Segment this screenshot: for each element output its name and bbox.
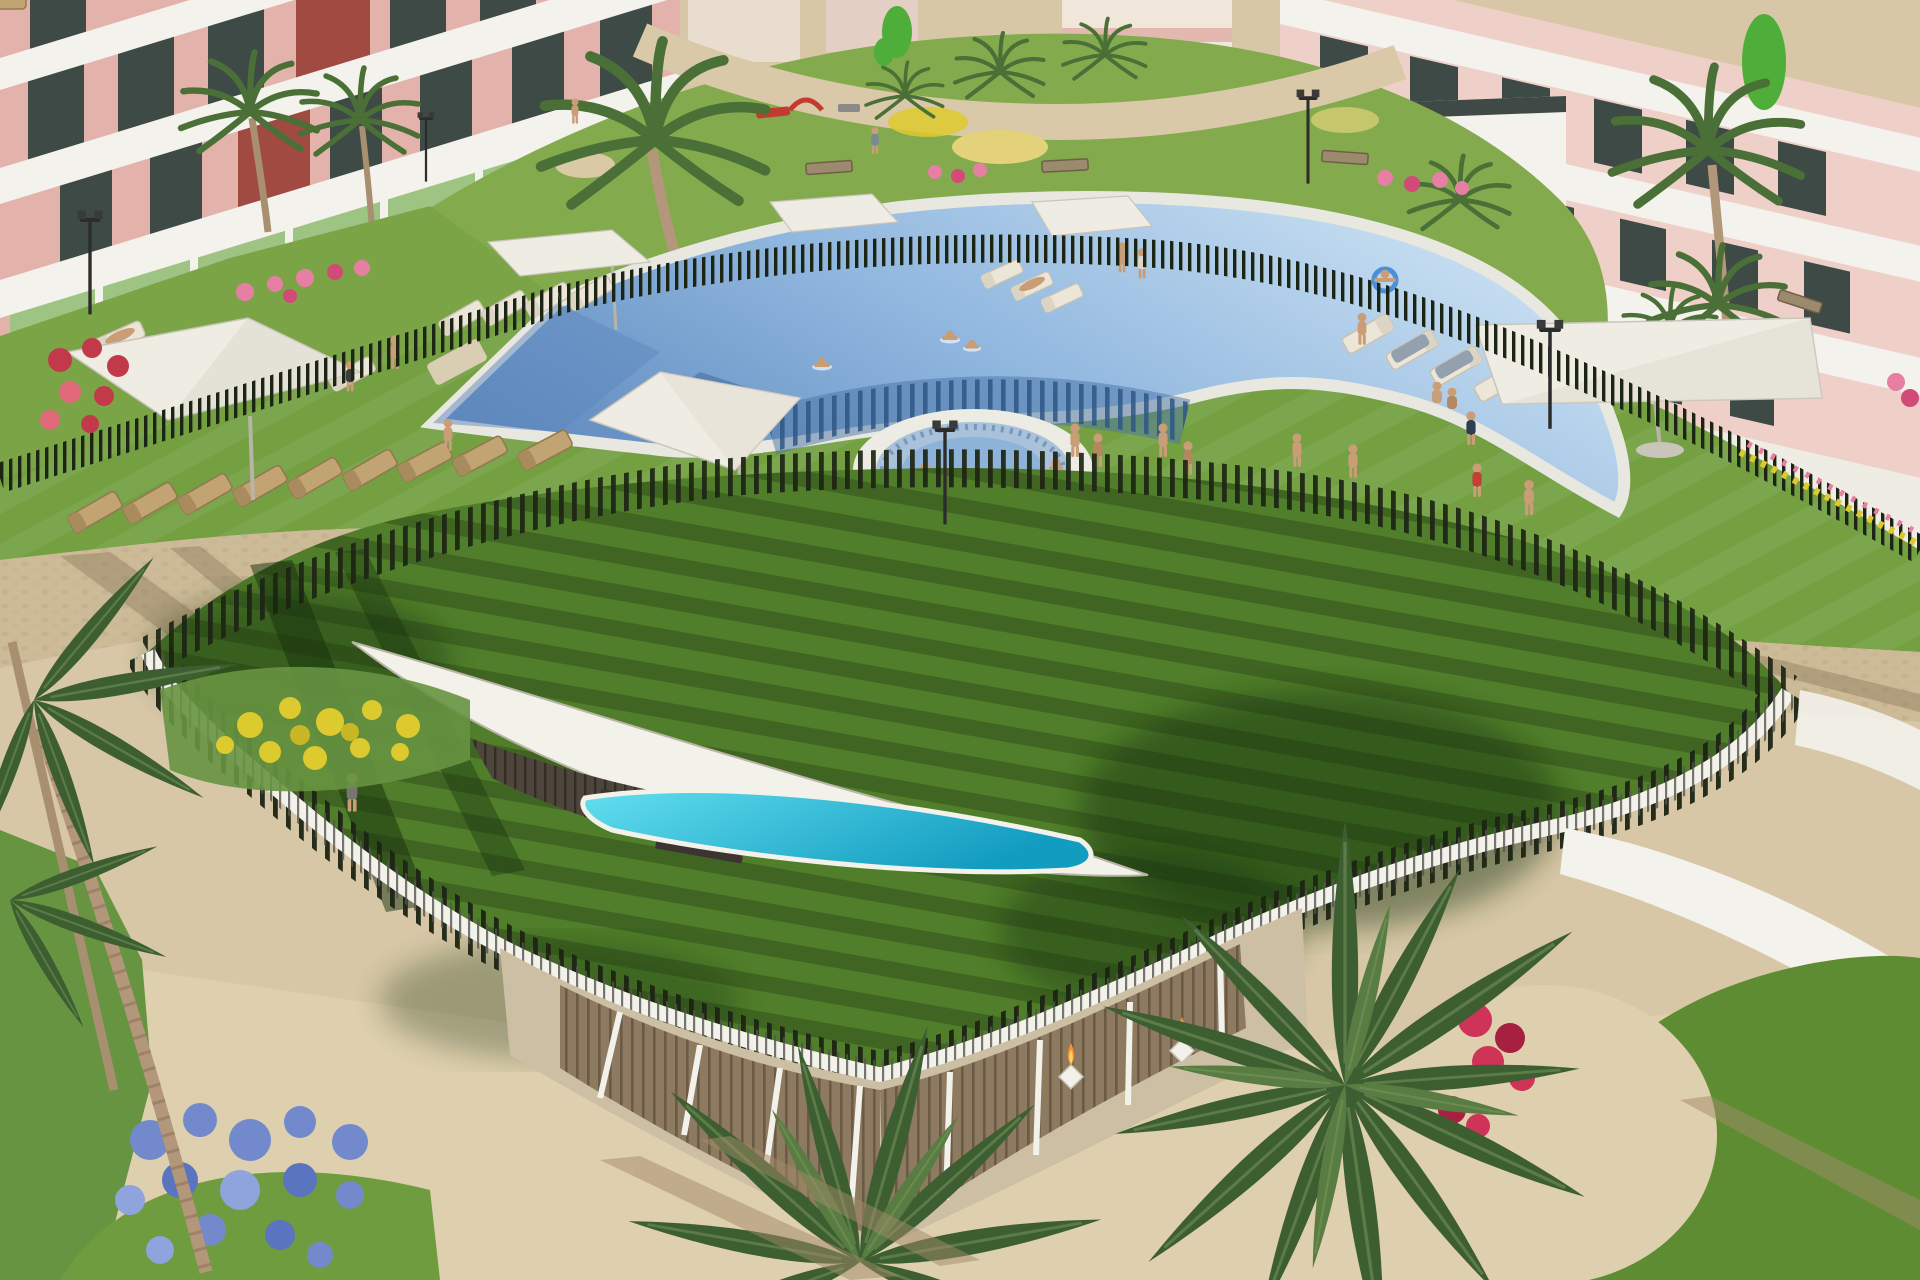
- rendered-scene: Aerial rendering of a resort residential…: [0, 0, 1920, 1280]
- scene-svg: Aerial rendering of a resort residential…: [0, 0, 1920, 1280]
